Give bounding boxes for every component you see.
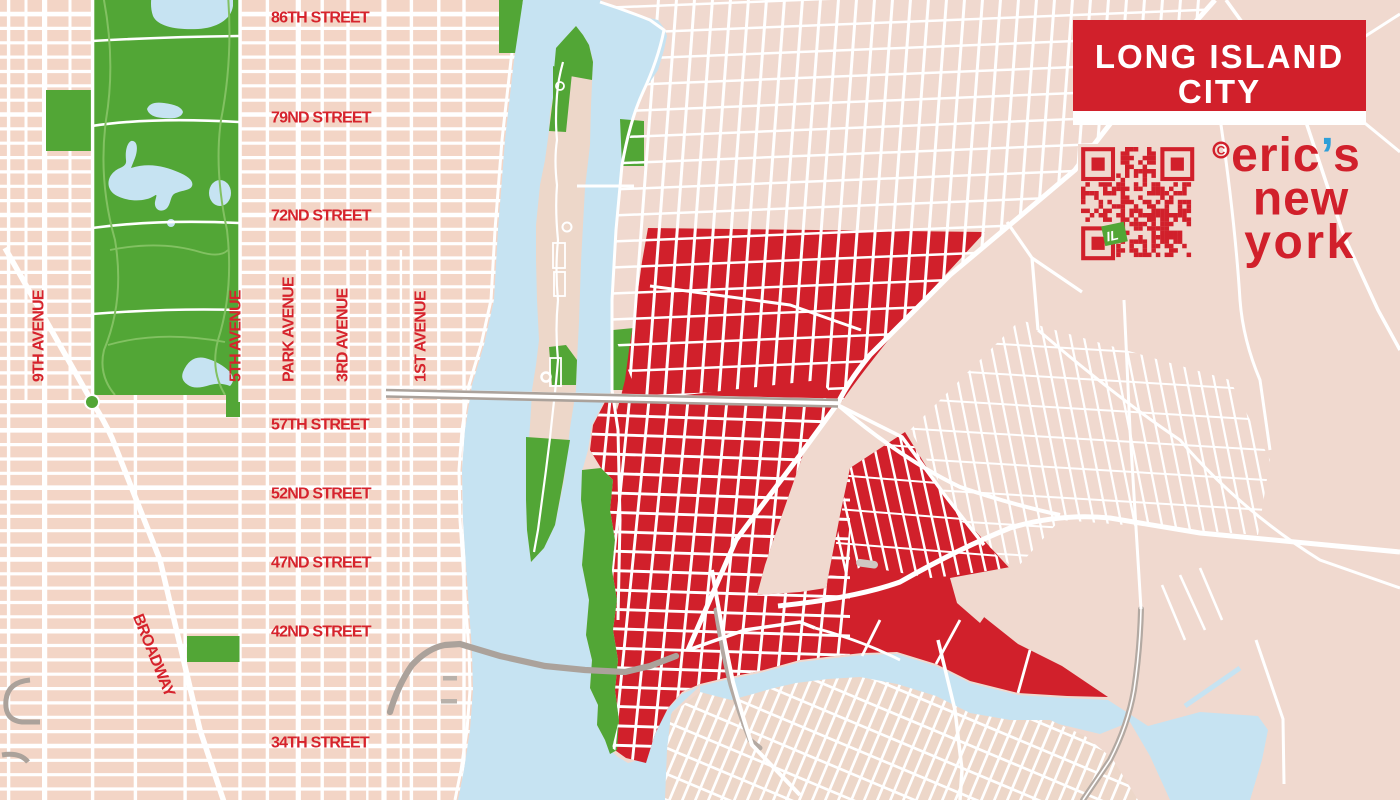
- svg-text:72ND STREET: 72ND STREET: [271, 207, 372, 224]
- svg-text:79ND STREET: 79ND STREET: [271, 109, 372, 126]
- svg-text:1ST AVENUE: 1ST AVENUE: [412, 290, 429, 382]
- svg-text:86TH STREET: 86TH STREET: [271, 9, 370, 26]
- svg-text:C: C: [1217, 144, 1226, 158]
- svg-text:york: york: [1244, 216, 1355, 269]
- svg-text:34TH STREET: 34TH STREET: [271, 734, 370, 751]
- svg-text:47ND STREET: 47ND STREET: [271, 554, 372, 571]
- svg-text:57TH STREET: 57TH STREET: [271, 416, 370, 433]
- svg-text:PARK AVENUE: PARK AVENUE: [280, 276, 297, 382]
- svg-text:LONG ISLAND: LONG ISLAND: [1095, 38, 1344, 75]
- svg-text:42ND STREET: 42ND STREET: [271, 623, 372, 640]
- svg-text:9TH AVENUE: 9TH AVENUE: [30, 289, 47, 382]
- svg-text:52ND STREET: 52ND STREET: [271, 485, 372, 502]
- svg-text:CITY: CITY: [1178, 73, 1261, 110]
- svg-text:5TH AVENUE: 5TH AVENUE: [227, 289, 244, 382]
- svg-text:3RD AVENUE: 3RD AVENUE: [334, 288, 351, 382]
